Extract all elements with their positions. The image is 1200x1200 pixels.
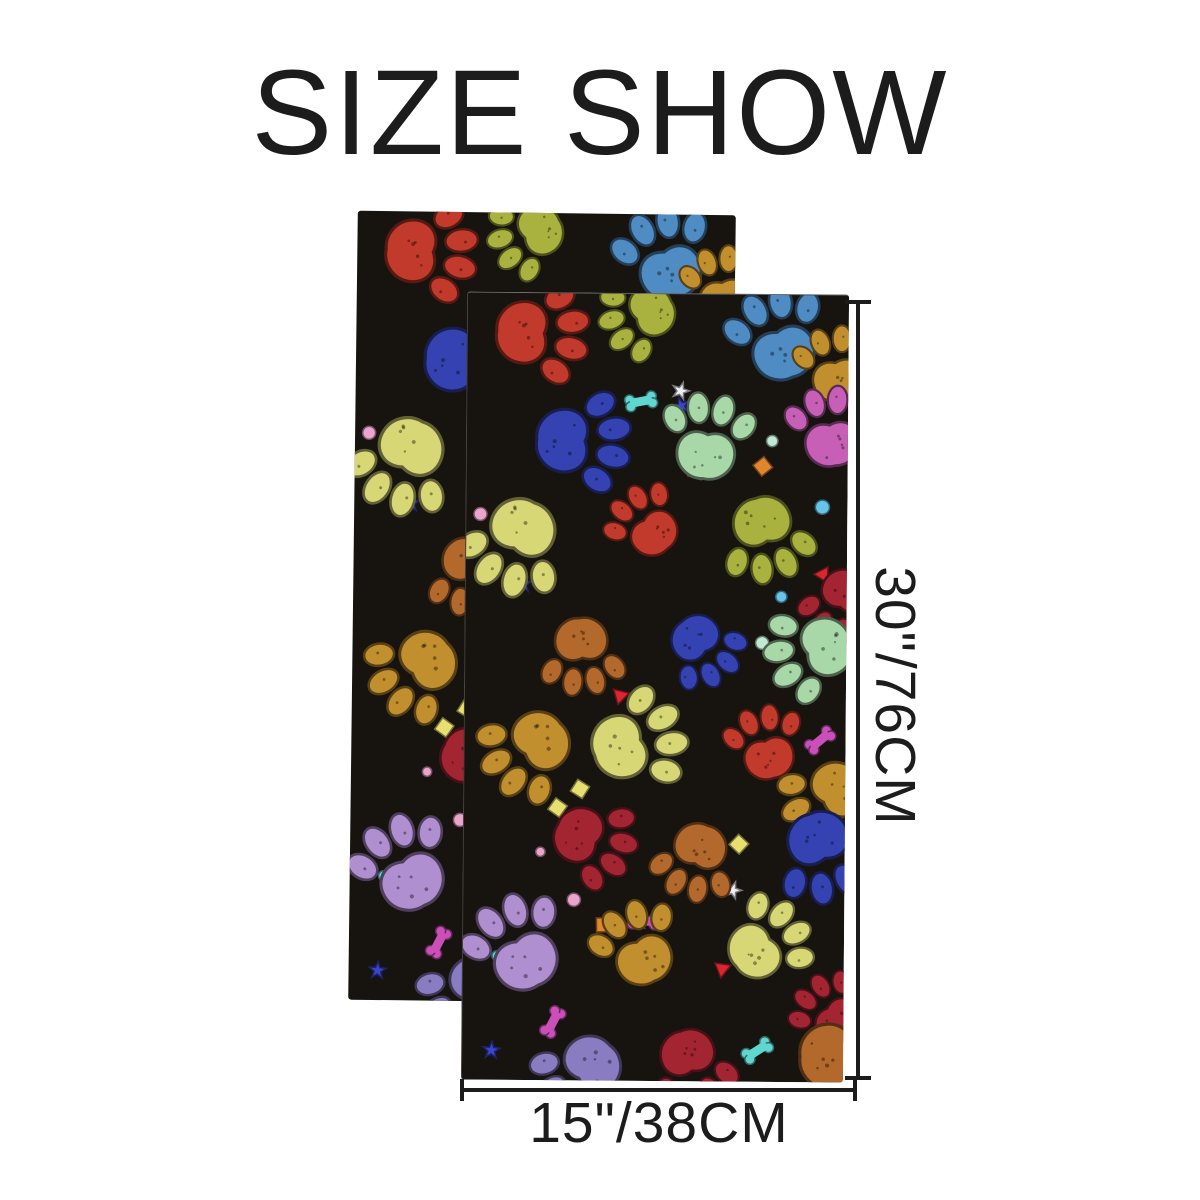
page-title: SIZE SHOW <box>0 52 1200 173</box>
width-dimension-label: 15"/38CM <box>529 1090 789 1156</box>
towel-front <box>461 292 849 1083</box>
height-dimension-line <box>856 300 860 1080</box>
height-dimension-label: 30"/76CM <box>862 566 928 826</box>
paw-print-fabric-front <box>462 293 849 1083</box>
size-show-figure: SIZE SHOW 30"/76CM 15"/38CM <box>0 0 1200 1200</box>
